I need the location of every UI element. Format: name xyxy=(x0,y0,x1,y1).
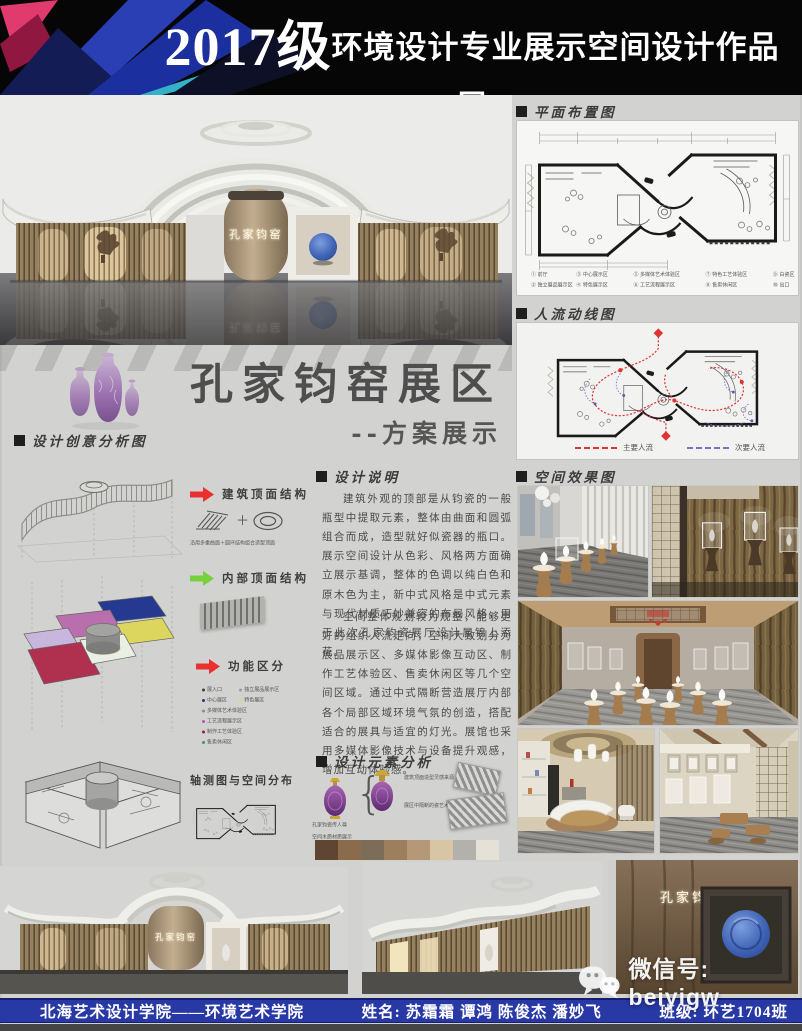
exterior-render-side xyxy=(362,862,602,994)
legend-item: ⑦ 特色工艺体验区 xyxy=(706,270,771,280)
section-floor-plan: 平面布置图 xyxy=(516,101,617,121)
exhibit-subtitle: --方案展示 xyxy=(250,414,502,450)
exhibit-title: 孔家钧窑展区 xyxy=(150,350,502,412)
function-legend: 展入口 独立展品展示区 中心展区 特色展区 多媒体艺术体验区 工艺流程展示区 制… xyxy=(202,684,312,747)
section-floor-plan-label: 平面布置图 xyxy=(534,101,617,121)
roof-wireframe-diagram xyxy=(14,460,186,564)
render-lounge-image xyxy=(518,729,654,853)
legend-item: ④ 特色展示区 xyxy=(576,281,631,291)
grayscale-axonometric xyxy=(12,726,190,852)
legend-item: ⑥ 工艺流程展示区 xyxy=(633,281,703,291)
axon-distribution-label: 轴测图与空间分布 xyxy=(190,772,294,788)
legend-dot xyxy=(202,699,205,702)
render-bronze-gallery-image xyxy=(652,486,798,597)
building-sign: 孔家钧窑 xyxy=(155,932,197,942)
section-elements: 设计元素分析 xyxy=(316,751,433,771)
header-year: 2017级 xyxy=(165,17,332,77)
flow-diagram-drawing xyxy=(517,323,798,441)
floor-plan-panel: ① 前厅 ③ 中心展示区 ⑤ 多媒体艺术体验区 ⑦ 特色工艺体验区 ⑨ 白瓷区 … xyxy=(517,121,798,295)
screen-model-image xyxy=(446,792,508,830)
flow-legend-secondary: 次要人流 xyxy=(687,442,765,453)
section-marker-icon xyxy=(516,471,527,482)
wood-swatch xyxy=(315,840,338,860)
watermark-text: 微信号: beiyigw xyxy=(629,950,802,1011)
section-flow-label: 人流动线图 xyxy=(534,303,617,323)
section-marker-icon xyxy=(516,308,527,319)
roof-structure-row: 建筑顶面结构 xyxy=(190,486,309,502)
interior-structure-label: 内部顶面结构 xyxy=(222,570,309,586)
exterior-render-front: 孔家钧窑 xyxy=(0,866,348,994)
legend-item: ① 前厅 xyxy=(531,270,574,280)
section-flow: 人流动线图 xyxy=(516,303,617,323)
render-corridor xyxy=(518,486,648,597)
secondary-flow-line-icon xyxy=(687,447,729,449)
legend-dot xyxy=(202,709,205,712)
section-renders-label: 空间效果图 xyxy=(534,466,617,486)
legend-dot xyxy=(239,688,242,691)
section-description-label: 设计说明 xyxy=(334,466,400,486)
section-renders: 空间效果图 xyxy=(516,466,617,486)
red-arrow-icon xyxy=(190,487,214,502)
section-concept: 设计创意分析图 xyxy=(14,430,148,450)
wood-swatch xyxy=(407,840,430,860)
building-sign: 孔家钧窑 xyxy=(229,227,283,241)
header-title-cn: 环境设计专业展示空间设计作品展 xyxy=(332,30,780,95)
interior-slat-panel-image xyxy=(200,596,264,630)
footer-strip xyxy=(0,1024,802,1031)
flow-legend-main: 主要人流 xyxy=(575,442,653,453)
interior-structure-row: 内部顶面结构 xyxy=(190,570,309,586)
legend-item: ⑨ 白瓷区 xyxy=(773,272,795,278)
floor-plan-legend: ① 前厅 ③ 中心展示区 ⑤ 多媒体艺术体验区 ⑦ 特色工艺体验区 ⑨ 白瓷区 … xyxy=(531,269,801,290)
section-marker-icon xyxy=(516,106,527,117)
roof-structure-icons: ＋ xyxy=(194,508,290,534)
legend-item: ③ 中心展示区 xyxy=(576,270,631,280)
plus-icon: ＋ xyxy=(236,513,249,528)
wood-swatch xyxy=(361,840,384,860)
render-bronze-gallery xyxy=(652,486,798,597)
header-title-line: 2017级环境设计专业展示空间设计作品展 xyxy=(150,2,794,95)
section-marker-icon xyxy=(316,471,327,482)
exhibition-poster: 2017级环境设计专业展示空间设计作品展 2017 environmental … xyxy=(0,0,802,1031)
legend-dot xyxy=(202,720,205,723)
render-gallery-seating-image xyxy=(660,729,798,853)
function-zones-axonometric xyxy=(12,572,190,738)
footer-names: 姓名: 苏霜霜 谭鸿 陈俊杰 潘妙飞 xyxy=(362,1000,602,1022)
red-arrow-icon xyxy=(196,659,220,674)
render-main-hall xyxy=(518,601,798,725)
header-titles: 2017级环境设计专业展示空间设计作品展 2017 environmental … xyxy=(150,2,794,95)
wood-swatch xyxy=(453,840,476,860)
poster-header: 2017级环境设计专业展示空间设计作品展 2017 environmental … xyxy=(0,0,802,95)
mini-plan-thumbnail xyxy=(188,794,284,844)
legend-item: ⑧ 售卖休闲区 xyxy=(706,281,771,291)
building-reflection xyxy=(3,279,509,345)
floor-plan-drawing xyxy=(517,121,798,271)
legend-item: ② 独立展品展示区 xyxy=(531,281,574,291)
green-arrow-icon xyxy=(190,571,214,586)
roof-caption: 沿用多重曲面＋圆环结构组合造型顶面 xyxy=(190,538,305,547)
section-marker-icon xyxy=(14,435,25,446)
hero-building-render: 孔家钧窑 xyxy=(0,95,512,345)
wood-swatch xyxy=(430,840,453,860)
watermark: 微信号: beiyigw xyxy=(578,950,802,1011)
wood-swatch xyxy=(338,840,361,860)
legend-dot xyxy=(202,688,205,691)
render-corridor-image xyxy=(518,486,648,597)
section-elements-label: 设计元素分析 xyxy=(334,751,433,771)
legend-item: ⑩ 出口 xyxy=(773,283,790,289)
wood-swatch xyxy=(476,840,499,860)
material-swatches xyxy=(315,840,499,860)
legend-dot xyxy=(202,730,205,733)
legend-dot xyxy=(239,699,242,702)
footer-school: 北海艺术设计学院——环境艺术学院 xyxy=(40,1000,304,1022)
flow-legend: 主要人流 次要人流 xyxy=(575,442,765,453)
render-gallery-seating xyxy=(660,729,798,853)
element-vases-image: { xyxy=(322,768,398,822)
wechat-icon xyxy=(578,962,621,1000)
function-division-row: 功能区分 xyxy=(196,658,286,674)
legend-item: ⑤ 多媒体艺术体验区 xyxy=(633,270,703,280)
legend-dot xyxy=(202,741,205,744)
vase-caption: 孔家钧瓷传人尊 xyxy=(312,820,412,829)
blue-vase xyxy=(309,233,337,261)
render-main-hall-image xyxy=(518,601,798,725)
flow-diagram-panel: 主要人流 次要人流 xyxy=(517,323,798,459)
title-vases-image xyxy=(62,350,142,438)
roof-structure-label: 建筑顶面结构 xyxy=(222,486,309,502)
wood-swatch xyxy=(384,840,407,860)
main-flow-line-icon xyxy=(575,447,617,449)
section-description: 设计说明 xyxy=(316,466,400,486)
section-concept-label: 设计创意分析图 xyxy=(32,430,148,450)
function-division-label: 功能区分 xyxy=(228,658,286,674)
render-lounge xyxy=(518,729,654,853)
section-marker-icon xyxy=(316,756,327,767)
